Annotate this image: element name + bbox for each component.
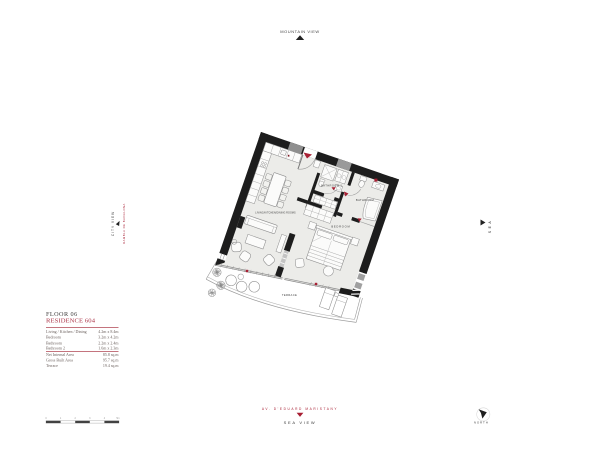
- svg-text:95.7 sq.m: 95.7 sq.m: [103, 358, 120, 363]
- svg-text:3.2m x 4.2m: 3.2m x 4.2m: [98, 335, 119, 340]
- svg-text:85.8 sq.m: 85.8 sq.m: [103, 352, 120, 357]
- svg-text:BEDROOM: BEDROOM: [331, 224, 350, 228]
- svg-text:Bedroom: Bedroom: [46, 335, 62, 340]
- svg-text:Living / Kitchen / Dining: Living / Kitchen / Dining: [46, 329, 87, 334]
- svg-text:CITY VIEW: CITY VIEW: [111, 211, 115, 236]
- svg-text:BATHROOM: BATHROOM: [356, 198, 375, 202]
- svg-text:SEA VIEW: SEA VIEW: [284, 420, 317, 425]
- svg-text:SEA: SEA: [488, 219, 492, 234]
- svg-text:RAMBLA DE BADALONA: RAMBLA DE BADALONA: [122, 203, 126, 244]
- svg-text:19.4 sq.m: 19.4 sq.m: [103, 363, 120, 368]
- svg-text:RESIDENCE 604: RESIDENCE 604: [46, 318, 96, 325]
- svg-text:1.6m x 2.3m: 1.6m x 2.3m: [98, 346, 119, 351]
- svg-text:TERRACE: TERRACE: [282, 293, 297, 297]
- svg-text:Bathroom 2: Bathroom 2: [46, 346, 65, 351]
- svg-text:Terrace: Terrace: [46, 363, 58, 368]
- svg-text:Gross Built Area: Gross Built Area: [46, 358, 73, 363]
- svg-text:BATHROOM 1: BATHROOM 1: [321, 184, 342, 188]
- svg-text:AV. D'EDUARD MARISTANY: AV. D'EDUARD MARISTANY: [262, 407, 338, 411]
- svg-text:5m: 5m: [116, 417, 119, 420]
- svg-text:LIVING/KITCHEN/DINING ROOMS: LIVING/KITCHEN/DINING ROOMS: [255, 211, 296, 214]
- svg-text:NORTH: NORTH: [474, 421, 489, 425]
- svg-text:MOUNTAIN VIEW: MOUNTAIN VIEW: [280, 29, 320, 34]
- svg-text:4.2m x 8.4m: 4.2m x 8.4m: [98, 329, 119, 334]
- svg-text:Net Internal Area: Net Internal Area: [46, 352, 74, 357]
